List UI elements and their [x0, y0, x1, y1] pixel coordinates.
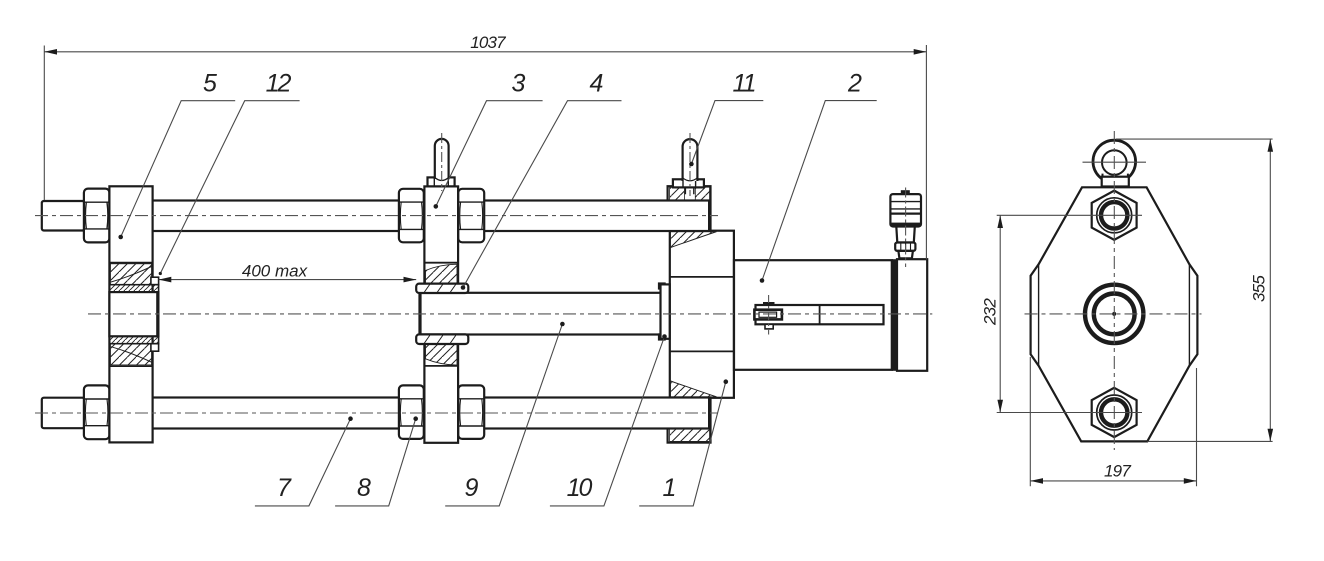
svg-text:355: 355 [1250, 275, 1269, 302]
svg-text:9: 9 [465, 474, 479, 502]
svg-text:1: 1 [663, 474, 677, 502]
svg-text:11: 11 [733, 70, 755, 98]
svg-text:5: 5 [203, 70, 217, 98]
svg-text:10: 10 [567, 474, 593, 502]
svg-text:4: 4 [590, 70, 604, 98]
svg-text:2: 2 [847, 70, 862, 98]
svg-text:1037: 1037 [470, 33, 506, 52]
svg-text:400 max: 400 max [242, 262, 308, 281]
svg-text:232: 232 [981, 298, 1000, 326]
svg-text:197: 197 [1104, 462, 1131, 481]
svg-text:3: 3 [512, 70, 526, 98]
svg-text:7: 7 [277, 474, 292, 502]
svg-text:8: 8 [357, 474, 371, 502]
svg-text:12: 12 [266, 70, 292, 98]
